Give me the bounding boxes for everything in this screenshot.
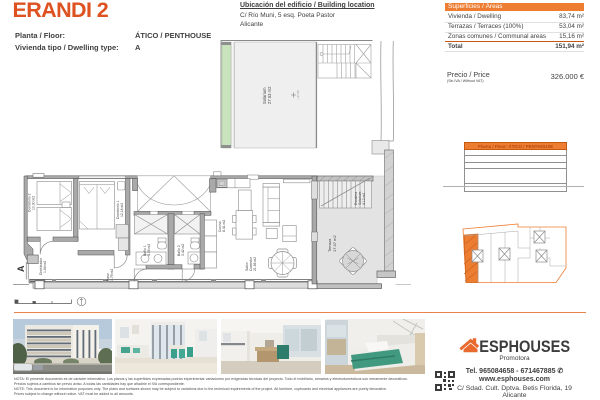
svg-text:12.14 m2: 12.14 m2 bbox=[120, 203, 124, 217]
svg-text:4.36 m2: 4.36 m2 bbox=[147, 244, 151, 256]
svg-text:21.66 m2: 21.66 m2 bbox=[253, 257, 257, 271]
svg-text:1.79 m2: 1.79 m2 bbox=[110, 269, 114, 281]
svg-text:4.12 m2: 4.12 m2 bbox=[362, 193, 366, 205]
svg-text:+17.40: +17.40 bbox=[296, 90, 300, 99]
svg-text:A: A bbox=[16, 265, 26, 272]
svg-text:8.41 m2: 8.41 m2 bbox=[222, 220, 226, 232]
svg-text:10.30 m2: 10.30 m2 bbox=[32, 196, 36, 210]
svg-text:1.64 m2: 1.64 m2 bbox=[43, 261, 47, 273]
svg-text:ESPHOUSES: ESPHOUSES bbox=[479, 337, 570, 356]
svg-text:17.47 m2: 17.47 m2 bbox=[332, 235, 337, 252]
svg-text:27.53 m2: 27.53 m2 bbox=[267, 86, 272, 104]
svg-text:3.42 m2: 3.42 m2 bbox=[181, 244, 185, 256]
